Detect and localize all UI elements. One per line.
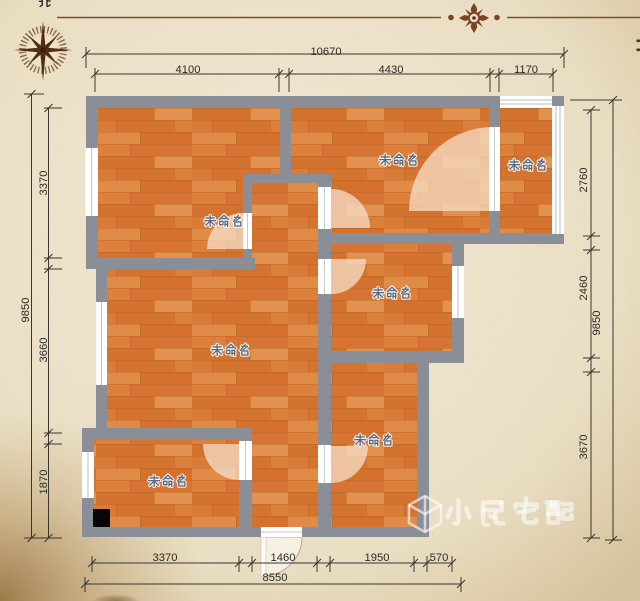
svg-text:1870: 1870 xyxy=(38,470,50,495)
svg-text:2460: 2460 xyxy=(578,276,590,301)
svg-text:4430: 4430 xyxy=(379,64,404,76)
svg-text:570: 570 xyxy=(430,552,449,564)
svg-text:1460: 1460 xyxy=(271,552,296,564)
svg-text:8550: 8550 xyxy=(263,572,288,584)
svg-text:9850: 9850 xyxy=(20,298,32,323)
svg-text:3660: 3660 xyxy=(38,338,50,363)
svg-text:3370: 3370 xyxy=(38,171,50,196)
svg-text:4100: 4100 xyxy=(176,64,201,76)
svg-text:9850: 9850 xyxy=(591,311,603,336)
svg-text:1170: 1170 xyxy=(514,64,538,76)
svg-text:10670: 10670 xyxy=(310,46,341,58)
svg-text:3370: 3370 xyxy=(153,552,178,564)
svg-text:3670: 3670 xyxy=(578,435,590,460)
svg-text:1950: 1950 xyxy=(365,552,390,564)
svg-text:2760: 2760 xyxy=(578,168,590,193)
